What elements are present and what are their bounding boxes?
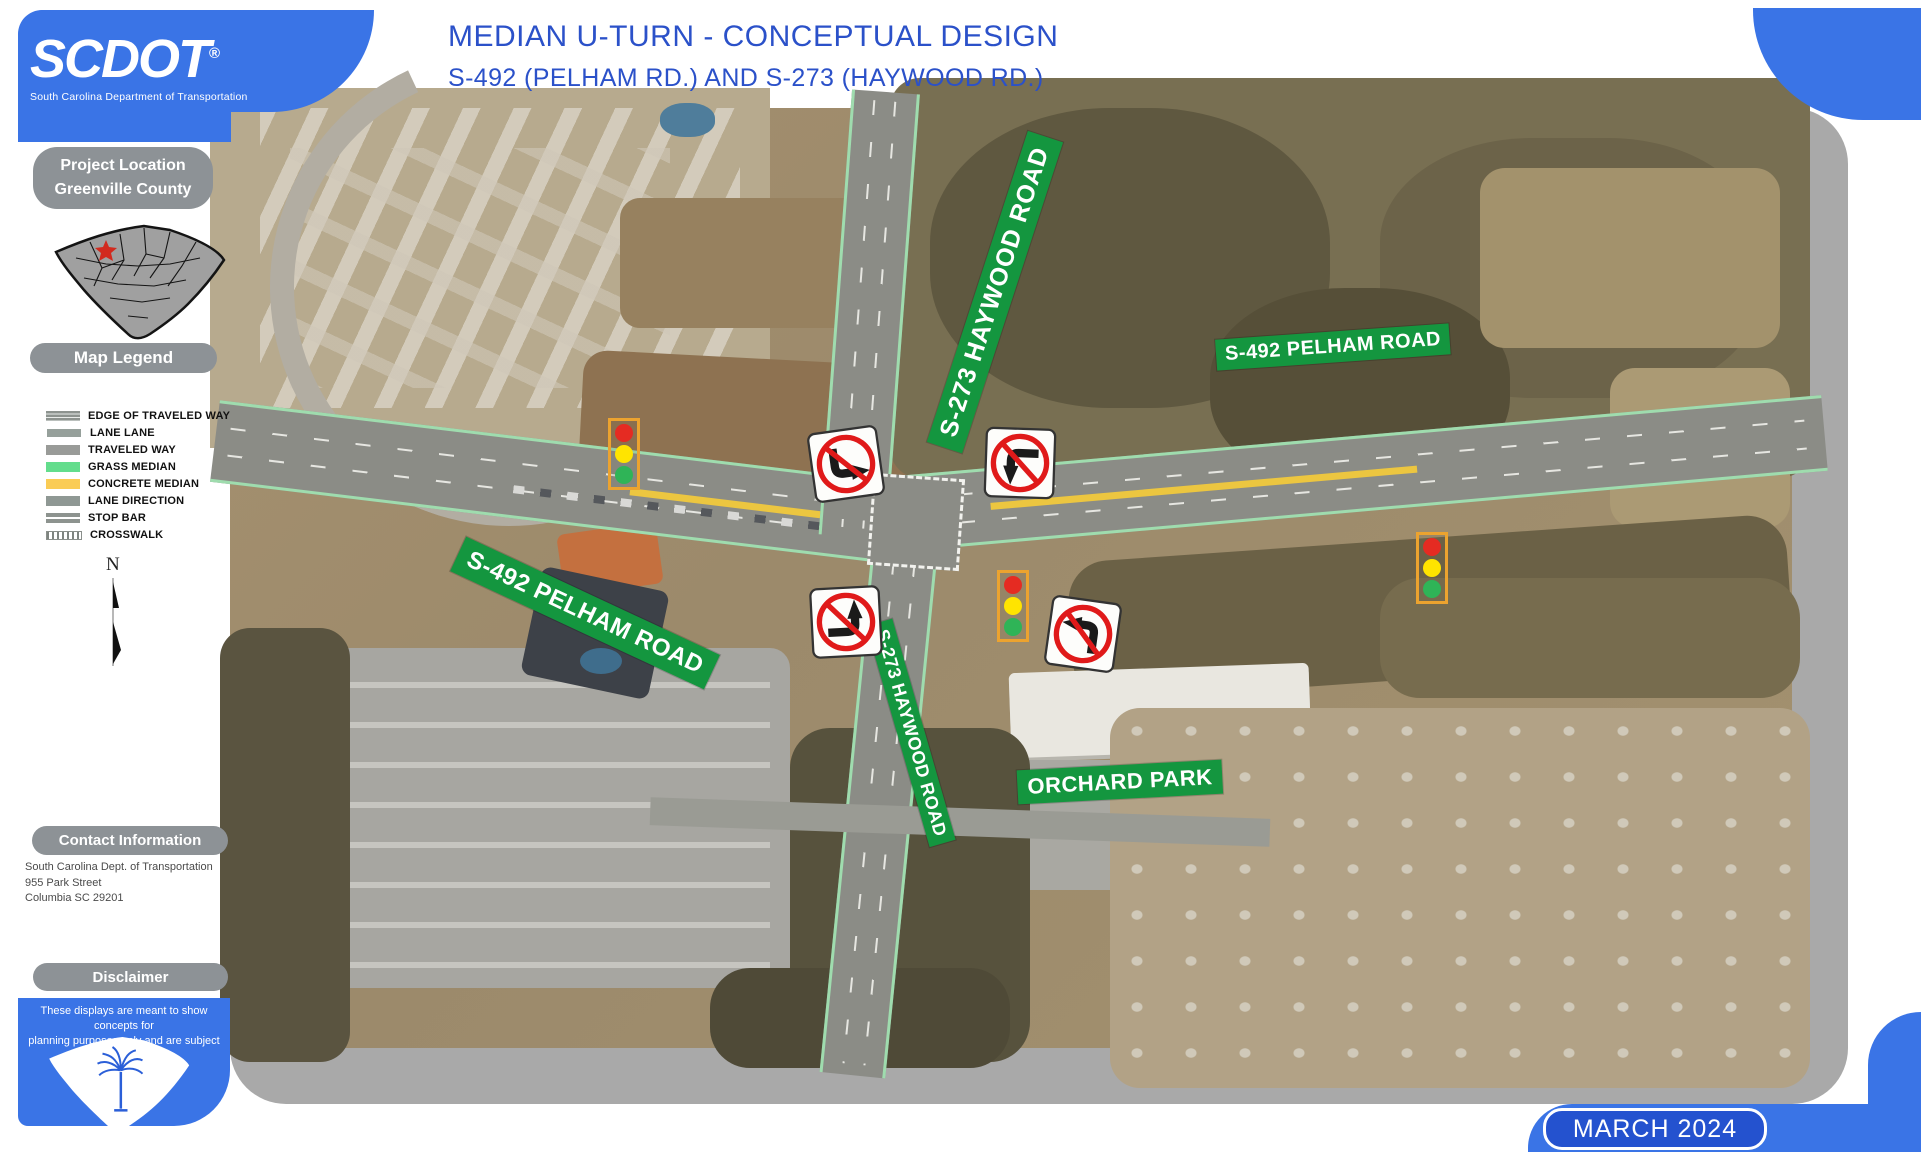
sc-county-map [50,220,232,340]
yellow-light-icon [615,445,633,463]
north-label: N [106,554,120,575]
red-light-icon [615,424,633,442]
contact-address: South Carolina Dept. of Transportation 9… [25,860,225,907]
page-subtitle: S-492 (PELHAM RD.) AND S-273 (HAYWOOD RD… [448,64,1044,93]
legend-swatch-stop-bar [46,513,80,523]
legend-swatch-lane-direction [46,496,80,506]
legend-item: CONCRETE MEDIAN [46,478,230,490]
legend-item: LANE LANE [46,427,230,439]
scdot-logo: SCDOT® South Carolina Department of Tran… [30,24,360,103]
map-legend-list: EDGE OF TRAVELED WAY LANE LANE TRAVELED … [46,410,230,541]
pool [580,648,622,674]
yellow-light-icon [1423,559,1441,577]
no-turn-sign-icon [803,421,889,507]
disclaimer-pill: Disclaimer [33,963,228,991]
project-location-line2: Greenville County [33,178,213,202]
no-turn-sign-icon [981,424,1060,503]
registered-mark: ® [209,45,218,62]
no-turn-sign-icon [806,582,886,662]
legend-item: STOP BAR [46,512,230,524]
sc-state-silhouette [40,1032,200,1132]
contact-heading: Contact Information [32,832,228,849]
legend-swatch-lane-lane [46,428,82,438]
bottom-right-band [1868,1012,1921,1152]
traffic-signal-west [608,418,640,490]
residential-area [1110,708,1792,1048]
green-light-icon [1423,580,1441,598]
legend-item: CROSSWALK [46,529,230,541]
project-location-pill: Project Location Greenville County [33,147,213,209]
legend-item: EDGE OF TRAVELED WAY [46,410,230,422]
page-title: MEDIAN U-TURN - CONCEPTUAL DESIGN [448,20,1058,54]
legend-item: LANE DIRECTION [46,495,230,507]
contact-line: South Carolina Dept. of Transportation [25,860,225,876]
north-arrow: N [92,552,136,672]
traffic-signal-east [1416,532,1448,604]
map-border-frame [230,108,1848,1104]
traffic-signal-south [997,570,1029,642]
red-light-icon [1004,576,1022,594]
map-legend-pill: Map Legend [30,343,217,373]
map-legend-heading: Map Legend [30,348,217,368]
red-light-icon [1423,538,1441,556]
legend-swatch-edge-of-traveled-way [46,411,80,421]
contact-line: 955 Park Street [25,876,225,892]
no-left-turn-sign-icon [1040,591,1126,677]
contact-information-pill: Contact Information [32,826,228,855]
legend-item: GRASS MEDIAN [46,461,230,473]
pool [660,108,715,137]
legend-swatch-crosswalk [46,531,82,540]
woods-patch [230,628,350,1048]
contact-line: Columbia SC 29201 [25,891,225,907]
legend-swatch-grass-median [46,462,80,472]
legend-swatch-concrete-median [46,479,80,489]
disclaimer-heading: Disclaimer [33,969,228,986]
scdot-logo-tagline: South Carolina Department of Transportat… [30,91,360,103]
green-light-icon [1004,618,1022,636]
project-location-line1: Project Location [33,154,213,178]
date-badge: MARCH 2024 [1543,1108,1767,1150]
green-light-icon [615,466,633,484]
legend-item: TRAVELED WAY [46,444,230,456]
field-patch [1480,168,1780,348]
scdot-logo-text: SCDOT [30,29,209,89]
yellow-light-icon [1004,597,1022,615]
legend-swatch-traveled-way [46,445,80,455]
